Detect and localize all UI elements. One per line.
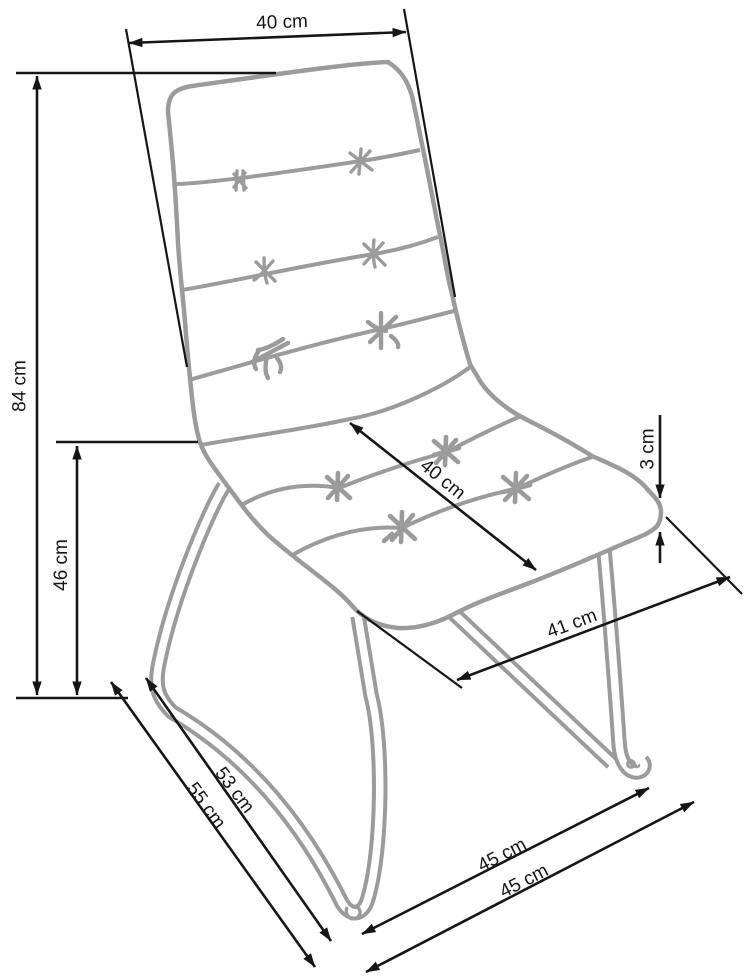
svg-text:45 cm: 45 cm: [496, 860, 552, 903]
svg-text:84 cm: 84 cm: [10, 360, 31, 412]
svg-text:40 cm: 40 cm: [256, 11, 309, 34]
svg-text:3 cm: 3 cm: [638, 428, 659, 469]
svg-text:46 cm: 46 cm: [51, 539, 72, 591]
